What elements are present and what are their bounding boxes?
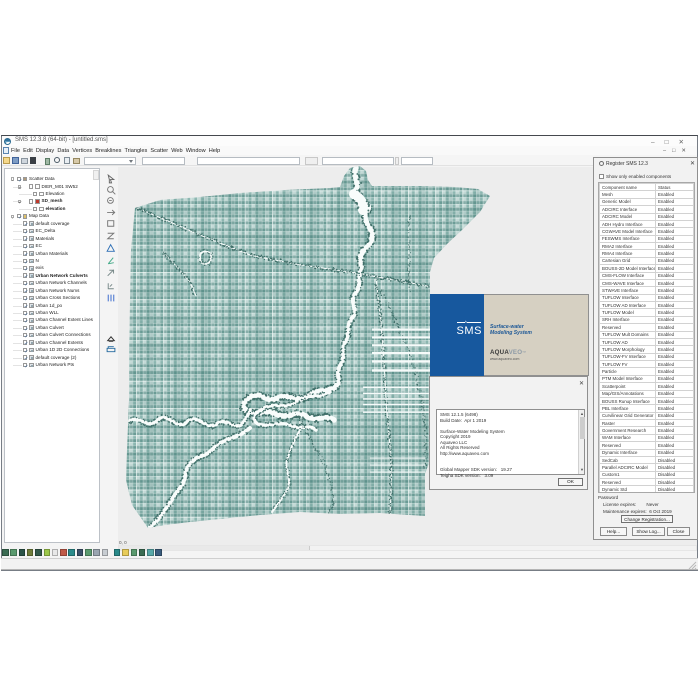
- svg-text:SMS: SMS: [457, 325, 482, 336]
